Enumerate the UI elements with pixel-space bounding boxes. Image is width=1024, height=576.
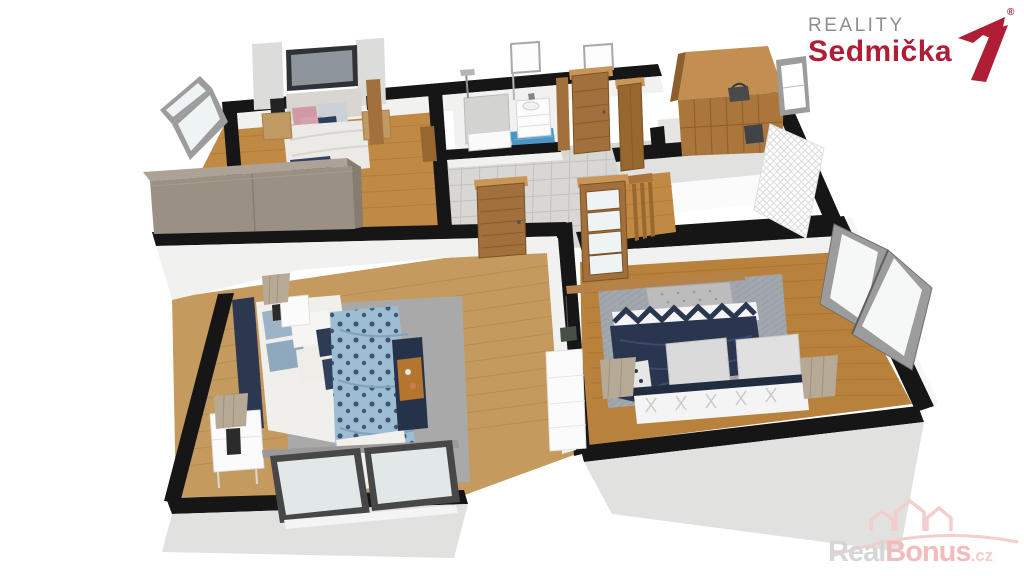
watermark-text: RealBonus.cz <box>828 536 993 569</box>
door-jamb <box>420 126 437 162</box>
drum-lamp <box>600 357 636 399</box>
floorplan-render <box>0 0 1024 576</box>
dresser-white <box>546 349 586 451</box>
watermark: RealBonus.cz <box>826 498 1024 576</box>
floorplan-image: REALITY Sedmička ® RealBonus.cz <box>0 0 1024 576</box>
drum-lamp <box>800 355 838 399</box>
watermark-tld: .cz <box>970 546 993 565</box>
registered-trademark: ® <box>1007 7 1014 18</box>
bench-with-tray <box>392 337 428 431</box>
room-bedroom-small <box>143 38 391 234</box>
brand-7-icon <box>950 8 1012 86</box>
nightstand <box>262 112 292 140</box>
tv-panel <box>286 45 358 91</box>
basket <box>744 124 764 144</box>
door-jamb <box>556 77 570 151</box>
basket <box>728 86 750 102</box>
door-bedroom-second-glass <box>577 174 629 282</box>
door-master <box>474 176 528 258</box>
wardrobe-large-taupe <box>143 158 363 234</box>
door-bathroom <box>569 66 613 154</box>
wall-lamp <box>270 98 285 113</box>
watermark-real: Real <box>828 536 885 568</box>
shower-head <box>460 69 475 76</box>
faucet <box>528 93 535 100</box>
watermark-bonus: Bonus <box>885 536 970 568</box>
window-northeast <box>776 56 810 116</box>
